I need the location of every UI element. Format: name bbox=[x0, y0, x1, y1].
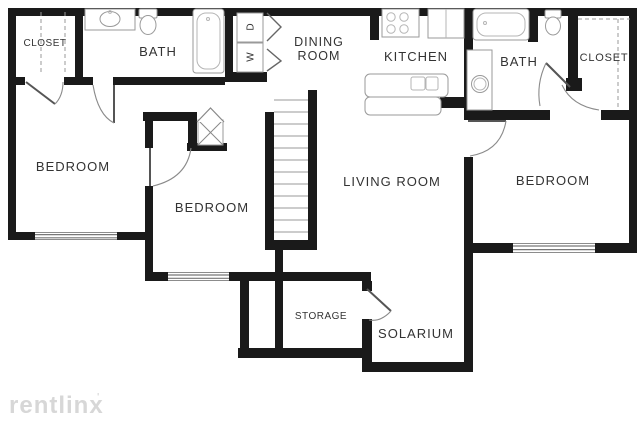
label-storage: STORAGE bbox=[295, 311, 347, 322]
door-storage bbox=[367, 289, 391, 320]
wall-wd-bottom bbox=[225, 72, 267, 82]
label-living-room: LIVING ROOM bbox=[343, 174, 441, 189]
watermark-trademark: ' bbox=[97, 392, 99, 403]
furnace-closet bbox=[197, 108, 224, 145]
label-bath-right: BATH bbox=[500, 54, 538, 69]
wall-lbath-west bbox=[75, 8, 83, 85]
tub-right bbox=[473, 9, 529, 40]
window-bedroom-middle bbox=[168, 273, 229, 281]
floorplan-page: D W CLOSE bbox=[0, 0, 640, 421]
wall-left-outer bbox=[8, 8, 16, 240]
label-kitchen: KITCHEN bbox=[384, 49, 448, 64]
left-bath-fixtures bbox=[85, 9, 224, 73]
wall-stair-left bbox=[265, 112, 274, 250]
wall-right-outer bbox=[629, 8, 637, 253]
wall-wd-west bbox=[225, 8, 233, 82]
furnace-roof-icon bbox=[197, 108, 224, 122]
watermark: rentlinx ' bbox=[9, 392, 104, 419]
wall-storage-left bbox=[240, 272, 249, 358]
label-closet-right: CLOSET bbox=[580, 52, 629, 64]
label-dining-line1: DINING bbox=[294, 35, 344, 49]
wall-rcloset-west bbox=[568, 8, 578, 80]
wall-storage-bottom bbox=[238, 348, 372, 358]
wall-midbed-west-lower bbox=[145, 186, 153, 276]
toilet-right-bowl bbox=[546, 17, 561, 35]
wall-midbed-top bbox=[143, 112, 197, 121]
door-left-bath bbox=[93, 85, 114, 123]
label-closet-left: CLOSET bbox=[23, 38, 66, 49]
window-bedroom-left bbox=[35, 233, 117, 240]
label-bath-left: BATH bbox=[139, 44, 177, 59]
wall-stair-bottom bbox=[265, 240, 317, 250]
label-bedroom-middle: BEDROOM bbox=[175, 200, 249, 215]
watermark-logo: rentlinx bbox=[9, 392, 104, 419]
wall-kitchen-half bbox=[440, 97, 464, 108]
wall-divider-lower bbox=[464, 157, 473, 372]
label-solarium: SOLARIUM bbox=[378, 326, 454, 341]
wall-understair bbox=[275, 240, 283, 353]
wall-lcloset-post bbox=[64, 77, 75, 85]
floorplan-drawing: D W CLOSE bbox=[0, 0, 640, 421]
bifold-door-lower bbox=[267, 49, 281, 71]
bifold-door-upper bbox=[267, 13, 281, 41]
wall-lbath-south-b bbox=[113, 77, 225, 85]
wall-solarium-bottom bbox=[362, 362, 473, 372]
label-bedroom-left: BEDROOM bbox=[36, 159, 110, 174]
wall-midbed-west-upper bbox=[145, 121, 153, 148]
label-bedroom-right: BEDROOM bbox=[516, 173, 590, 188]
wall-kitchen-stub bbox=[370, 8, 379, 40]
staircase bbox=[274, 100, 308, 232]
door-bedroom-middle bbox=[150, 148, 191, 186]
toilet-left-bowl bbox=[140, 16, 156, 35]
washer-dryer-closet: D W bbox=[237, 13, 281, 72]
window-bedroom-right bbox=[513, 244, 595, 253]
washer-label: W bbox=[246, 52, 257, 62]
wall-lcloset-south bbox=[8, 77, 25, 85]
door-left-closet bbox=[26, 82, 63, 104]
counter-lower bbox=[365, 97, 441, 115]
door-right-bath bbox=[539, 63, 570, 106]
stove bbox=[382, 9, 419, 37]
wall-stair-right bbox=[308, 90, 317, 250]
door-bedroom-right bbox=[468, 121, 506, 156]
dryer-label: D bbox=[246, 23, 257, 30]
label-dining-line2: ROOM bbox=[298, 49, 341, 63]
wall-rbath-south bbox=[464, 110, 550, 120]
wall-lbath-south-a bbox=[75, 77, 93, 85]
